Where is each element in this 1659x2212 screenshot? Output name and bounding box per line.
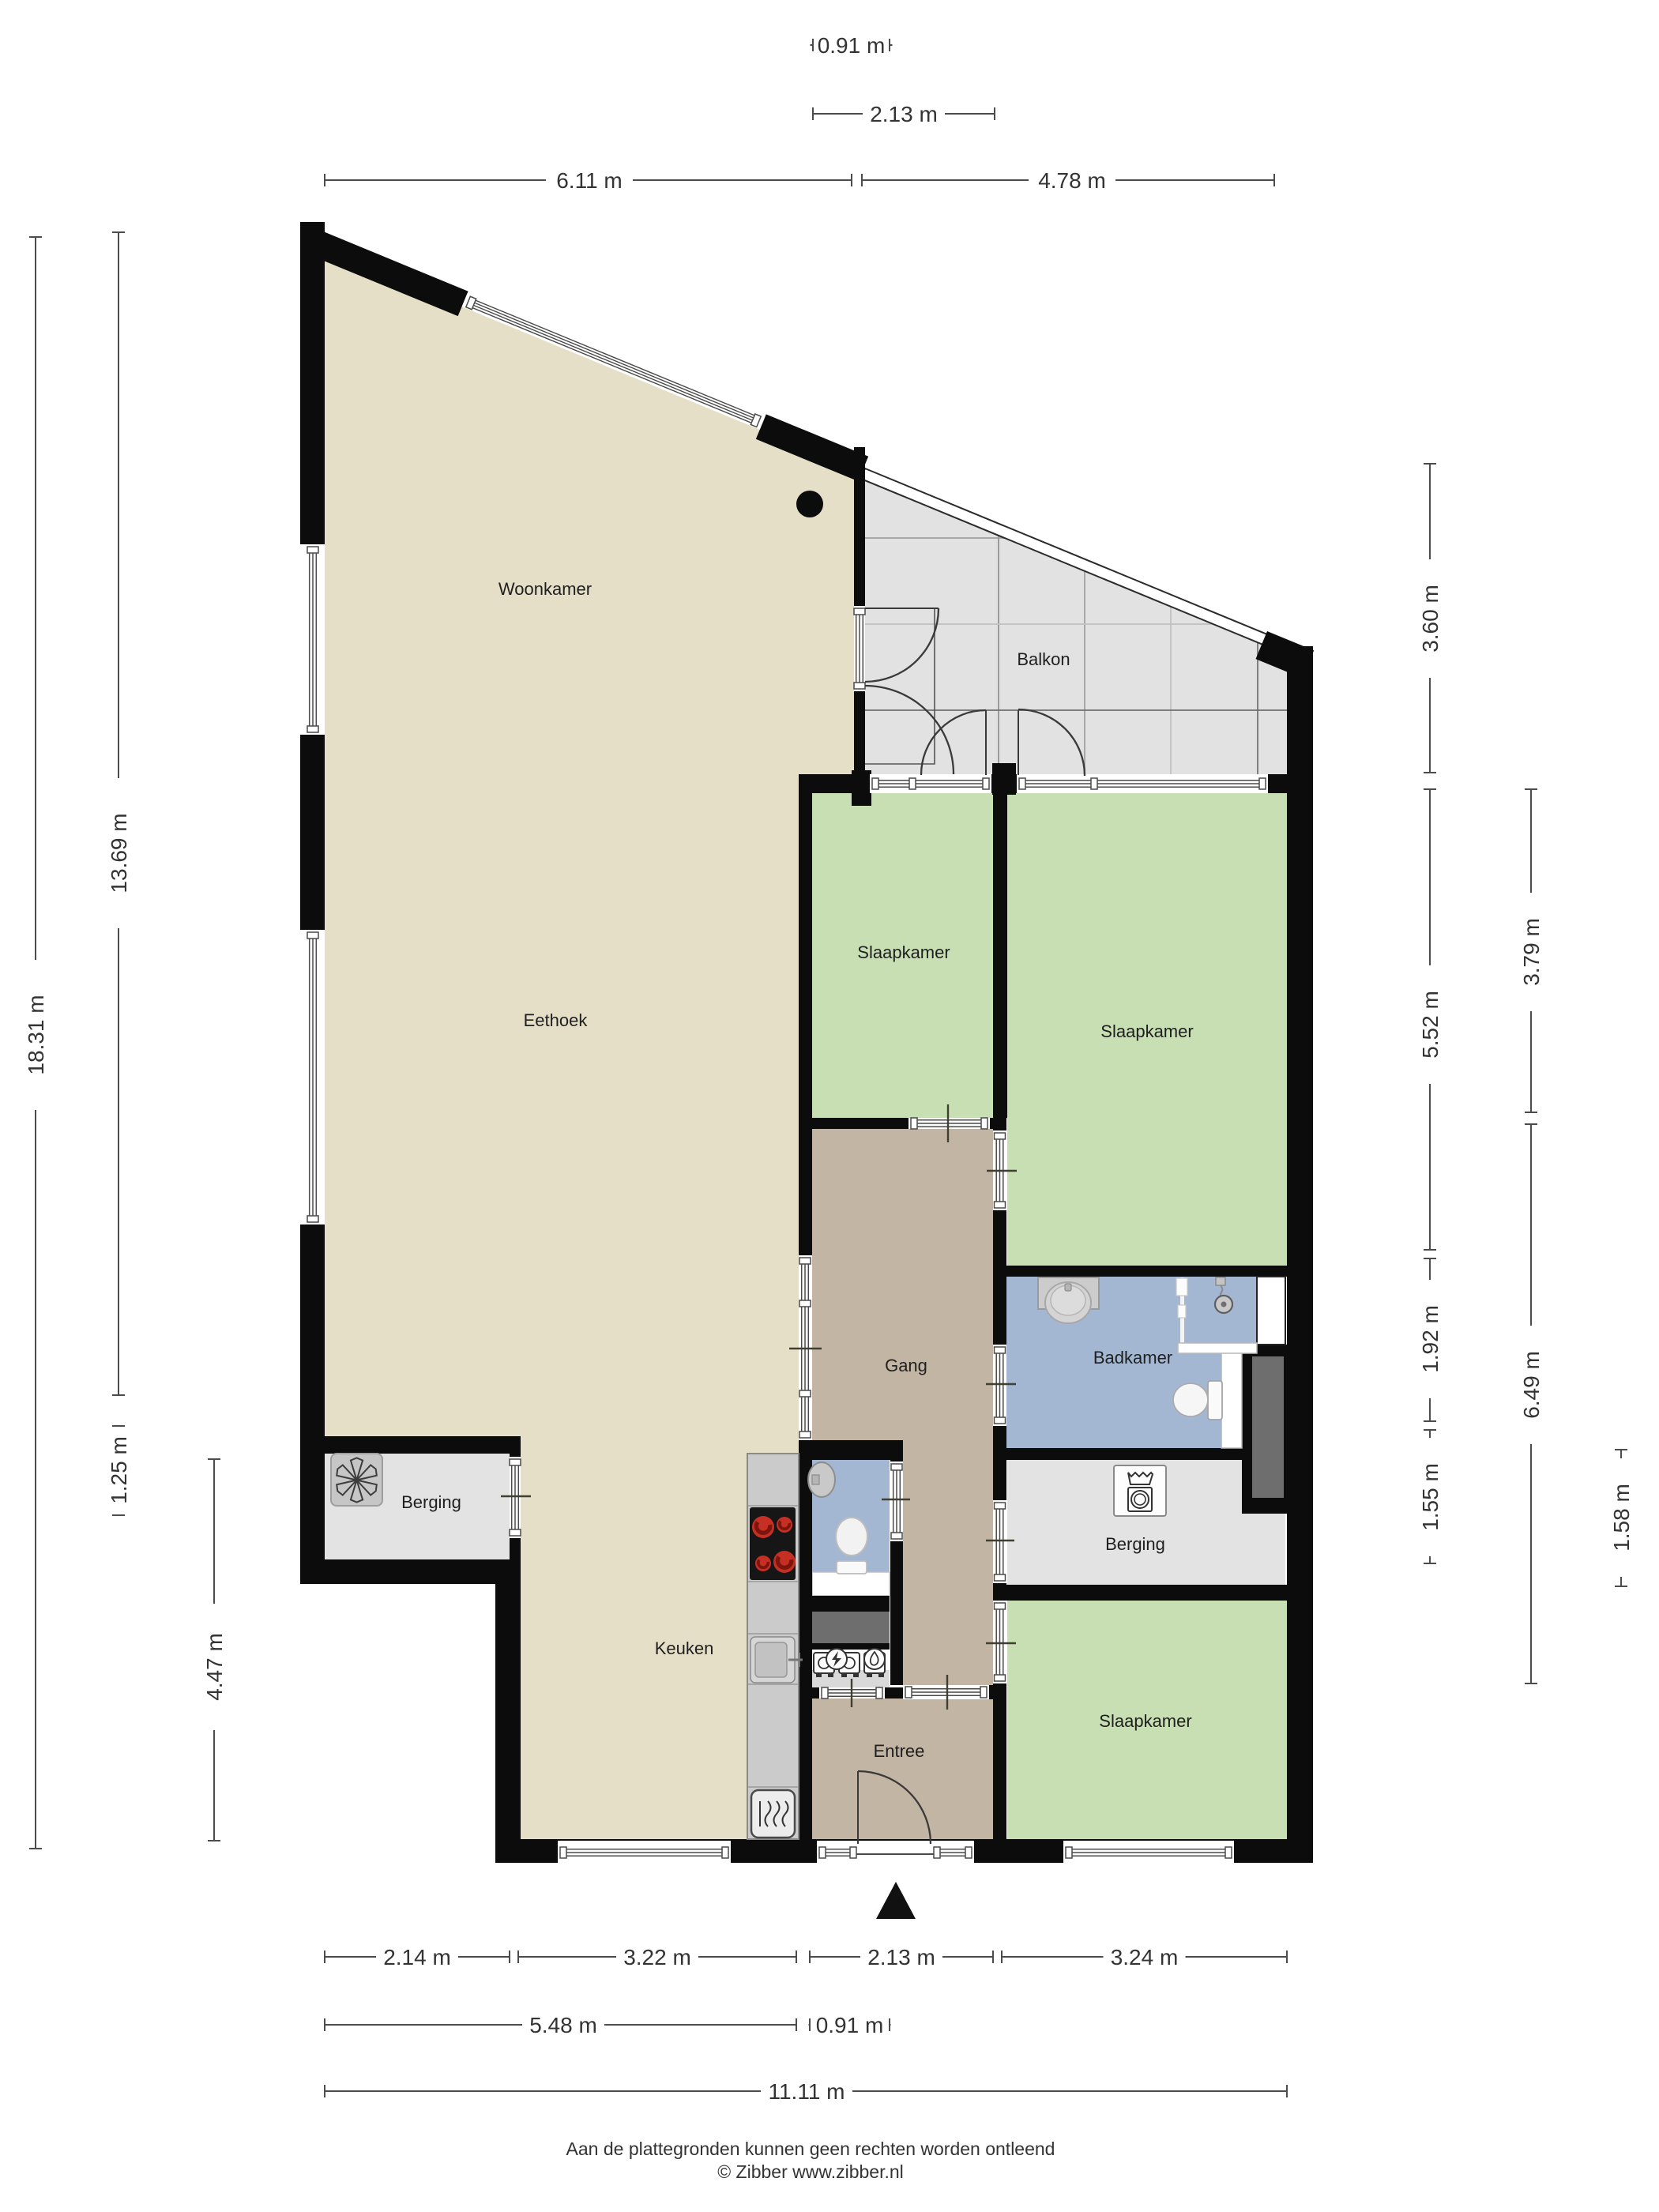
svg-text:Berging: Berging <box>401 1492 461 1512</box>
svg-text:2.13 m: 2.13 m <box>870 102 938 126</box>
svg-text:Badkamer: Badkamer <box>1093 1348 1172 1367</box>
svg-text:6.49 m: 6.49 m <box>1519 1351 1544 1419</box>
svg-text:Entree: Entree <box>874 1741 925 1761</box>
svg-text:3.22 m: 3.22 m <box>623 1945 691 1969</box>
svg-text:0.91 m: 0.91 m <box>818 33 886 58</box>
svg-text:1.92 m: 1.92 m <box>1418 1305 1443 1373</box>
svg-text:6.11 m: 6.11 m <box>556 168 623 193</box>
svg-text:4.78 m: 4.78 m <box>1038 168 1106 193</box>
svg-text:Slaapkamer: Slaapkamer <box>1100 1021 1193 1041</box>
svg-text:2.13 m: 2.13 m <box>867 1945 935 1969</box>
svg-text:Balkon: Balkon <box>1017 649 1070 669</box>
svg-text:1.55 m: 1.55 m <box>1418 1463 1443 1531</box>
svg-text:3.60 m: 3.60 m <box>1418 585 1443 653</box>
svg-text:5.48 m: 5.48 m <box>529 2013 597 2037</box>
svg-text:5.52 m: 5.52 m <box>1418 991 1443 1059</box>
svg-text:3.79 m: 3.79 m <box>1519 918 1544 986</box>
svg-text:Gang: Gang <box>885 1356 927 1375</box>
svg-text:11.11 m: 11.11 m <box>768 2079 845 2104</box>
svg-text:0.91 m: 0.91 m <box>816 2013 884 2037</box>
svg-text:Aan de plattegronden kunnen ge: Aan de plattegronden kunnen geen rechten… <box>566 2139 1055 2159</box>
svg-text:Slaapkamer: Slaapkamer <box>1099 1711 1191 1731</box>
svg-text:© Zibber www.zibber.nl: © Zibber www.zibber.nl <box>717 2161 904 2182</box>
svg-text:Slaapkamer: Slaapkamer <box>857 942 950 962</box>
svg-text:3.24 m: 3.24 m <box>1111 1945 1179 1969</box>
svg-text:1.25 m: 1.25 m <box>107 1436 131 1504</box>
svg-text:Eethoek: Eethoek <box>524 1010 589 1030</box>
svg-text:Keuken: Keuken <box>655 1638 714 1658</box>
svg-text:Berging: Berging <box>1105 1534 1165 1554</box>
svg-text:Woonkamer: Woonkamer <box>498 579 592 599</box>
svg-text:13.69 m: 13.69 m <box>107 813 131 893</box>
svg-text:4.47 m: 4.47 m <box>202 1633 227 1701</box>
svg-text:1.58 m: 1.58 m <box>1609 1484 1634 1552</box>
svg-text:2.14 m: 2.14 m <box>383 1945 451 1969</box>
svg-text:18.31 m: 18.31 m <box>24 995 48 1074</box>
